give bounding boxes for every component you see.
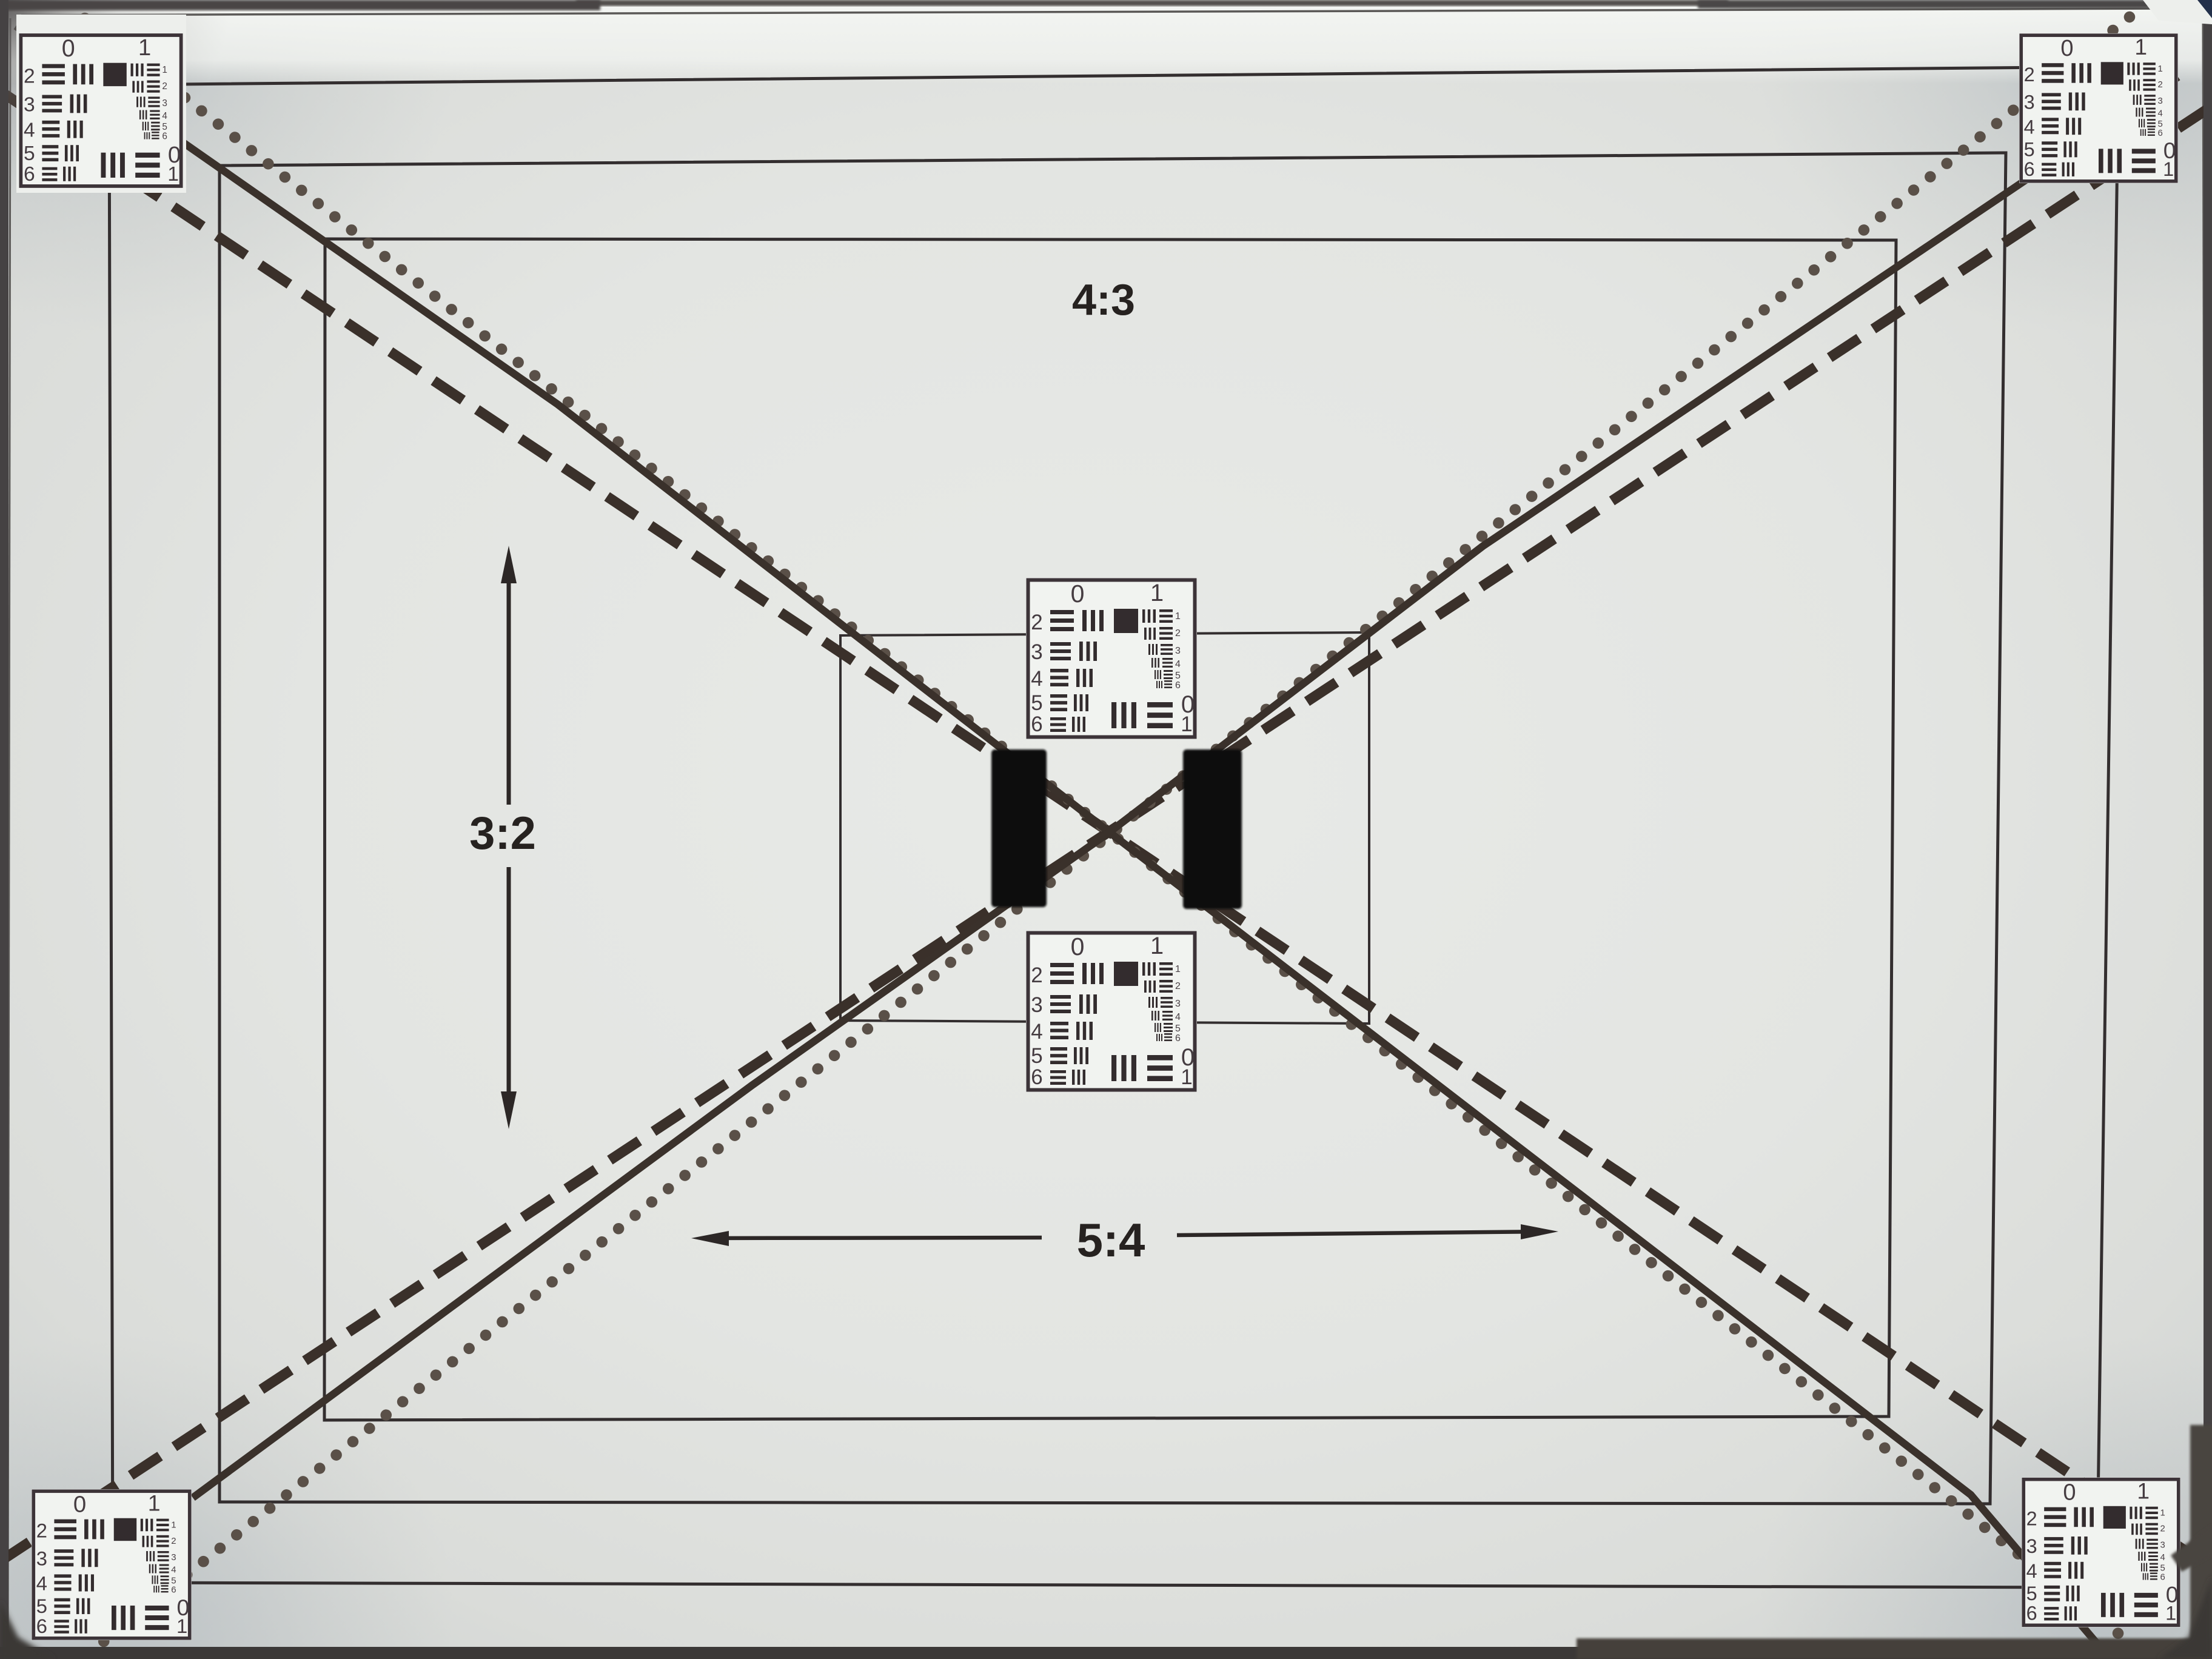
svg-text:4:3: 4:3 (1072, 276, 1135, 324)
svg-text:3:2: 3:2 (469, 808, 536, 859)
svg-text:5:4: 5:4 (1077, 1213, 1145, 1267)
